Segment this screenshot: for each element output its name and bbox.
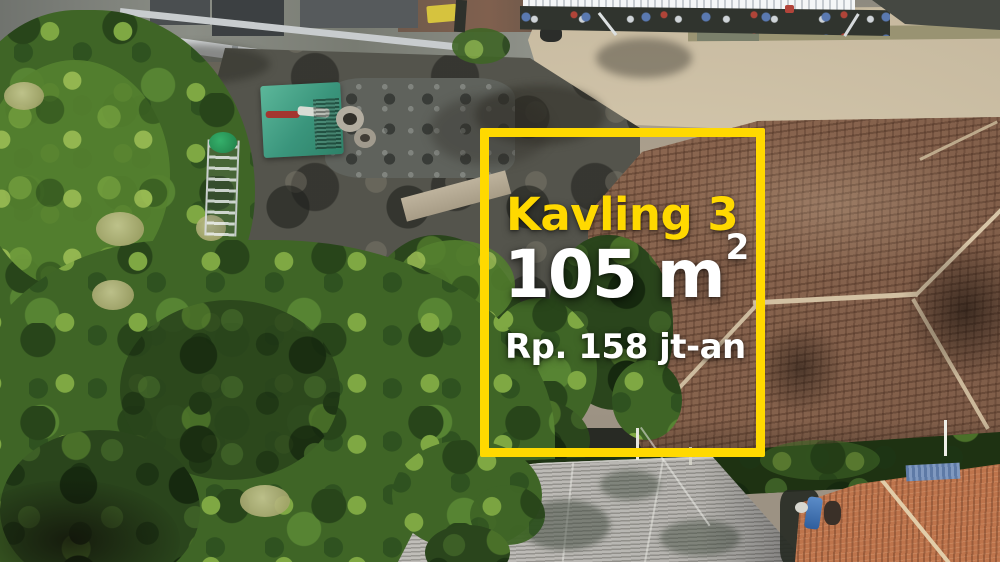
yellow-tarp-banner: [426, 4, 457, 24]
concrete-pipe-2: [354, 128, 376, 148]
flower-cluster-5: [240, 485, 290, 517]
roof-ridge-1: [753, 292, 918, 306]
aerial-photo-ad: Kavling 3 105 m2 Rp. 158 jt-an: [0, 0, 1000, 562]
weeds: [452, 28, 510, 64]
dark-pole: [454, 0, 467, 32]
white-bucket: [795, 502, 808, 513]
orange-roof-ridge: [879, 478, 950, 562]
area-superscript: 2: [726, 228, 750, 268]
white-post-3: [944, 420, 947, 456]
red-laundry-item: [785, 5, 794, 13]
concrete-block-2: [300, 0, 418, 28]
blue-fence-panel: [906, 463, 961, 482]
flower-cluster-3: [92, 280, 134, 310]
plot-label: Kavling 3: [506, 188, 738, 241]
leaf-shadow-3: [600, 470, 660, 500]
flower-cluster-4: [4, 82, 44, 110]
area-number: 105 m: [504, 236, 724, 313]
tree-shadow-on-roof-2: [755, 320, 845, 415]
tree-shadow-road-2: [596, 38, 692, 78]
hedge-highlight: [760, 440, 880, 480]
red-pipe: [266, 111, 300, 118]
small-green-tree: [209, 132, 237, 153]
scaffold-ladder: [204, 139, 239, 236]
flower-cluster-1: [96, 212, 144, 246]
plot-price: Rp. 158 jt-an: [505, 327, 746, 367]
dark-object: [824, 501, 841, 525]
plot-area-value: 105 m2: [504, 242, 749, 308]
green-tarp-shelter: [260, 82, 344, 158]
